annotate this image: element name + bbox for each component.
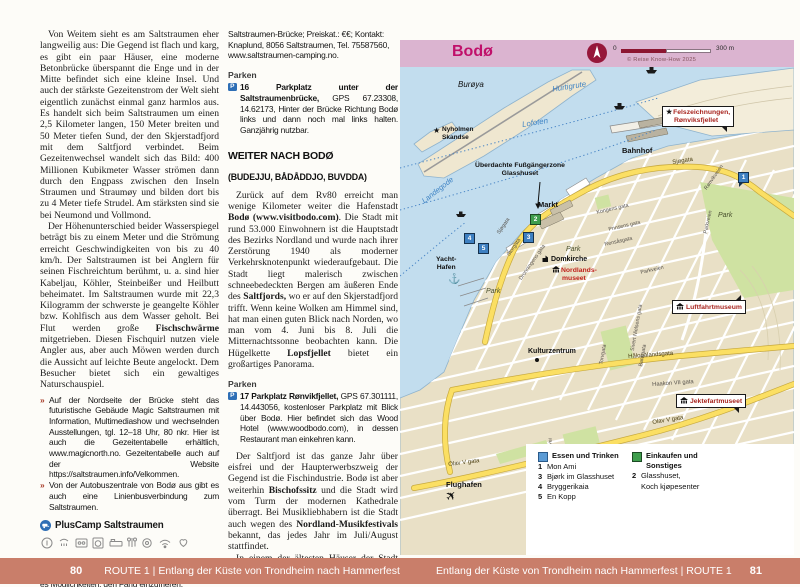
page-number-left: 80 — [70, 565, 82, 577]
tip-bullet-icon: » — [40, 480, 44, 491]
bahnhof-label: Bahnhof — [622, 146, 652, 155]
domkirche-label: Domkirche — [542, 254, 587, 263]
pets-icon — [180, 540, 187, 547]
poi-marker-2: 2 — [530, 214, 541, 225]
parking-entry-17: P 17 Parkplatz Rønvikfjellet, GPS 67.301… — [228, 391, 398, 445]
footer-right-label: Entlang der Küste von Trondheim nach Ham… — [436, 565, 732, 577]
park-label: Park — [566, 246, 580, 253]
bodo-text: Zurück auf dem Rv80 erreicht man wenige … — [228, 190, 398, 371]
parking-number: 17 — [240, 391, 249, 401]
dishwashing-icon — [143, 539, 151, 547]
compass-icon — [586, 42, 608, 64]
parking-entry-16: P 16 Parkplatz unter der Saltstraumenbrü… — [228, 82, 398, 136]
church-icon — [542, 254, 549, 262]
map-title: Bodø — [452, 43, 493, 61]
legend-item: 4Bryggerikaia — [538, 482, 619, 492]
section-heading: WEITER NACH BODØ — [228, 150, 398, 162]
reception-icon — [42, 538, 52, 548]
island-label: Burøya — [458, 80, 484, 89]
legend-item: 3Bjørk im Glasshuset — [538, 472, 619, 482]
star-icon: ★ — [666, 109, 672, 116]
guidebook-spread: Von Weitem sieht es am Saltstraumen eher… — [0, 0, 800, 587]
bodo-text-2: Der Saltfjord ist das ganze Jahr über ei… — [228, 451, 398, 575]
markt-label: Markt — [538, 200, 558, 209]
middle-text-column: Saltstraumen-Brücke; Preiskat.: €€; Kont… — [228, 29, 398, 575]
park-label: Park — [486, 288, 500, 295]
poi-marker-1: 1 — [738, 172, 749, 183]
kulturzentrum-label: Kulturzentrum — [528, 348, 576, 355]
parking-icon: P — [228, 392, 237, 401]
kitchen-icon — [76, 539, 87, 547]
star-icon: ★ — [433, 126, 440, 135]
parken-heading: Parken — [228, 70, 398, 80]
left-text-column: Von Weitem sieht es am Saltstraumen eher… — [40, 29, 219, 587]
legend-shop-column: Einkaufen undSonstiges 2 Glasshuset,Koch… — [632, 451, 699, 492]
page-footer: 80 ROUTE 1 | Entlang der Küste von Trond… — [0, 558, 800, 584]
poi-marker-4: 4 — [464, 233, 475, 244]
amenity-icons-row — [40, 535, 219, 556]
luftfahrtmuseum-callout: Luftfahrtmuseum — [672, 300, 746, 314]
footer-left-label: ROUTE 1 | Entlang der Küste von Trondhei… — [104, 565, 400, 577]
campsite-heading: PlusCamp Saltstraumen — [40, 520, 219, 531]
legend-heading: Einkaufen undSonstiges — [646, 451, 698, 471]
campsite-icon — [40, 520, 51, 531]
legend-eat-column: Essen und Trinken 1Mon Ami 3Bjørk im Gla… — [538, 451, 619, 502]
scale-start: 0 — [613, 45, 617, 52]
tip-item: » Von der Autobuszentrale von Bodø aus g… — [40, 480, 219, 512]
map-copyright: © Reise Know-How 2025 — [627, 57, 696, 63]
legend-item: 2 Glasshuset,Koch kjøpesenter — [632, 471, 699, 491]
campsite-name: PlusCamp Saltstraumen — [55, 520, 164, 531]
anchor-icon: ⚓ — [448, 274, 460, 285]
wc-icon — [128, 538, 137, 547]
legend-blue-square — [538, 452, 548, 462]
section-subheading: (BUDEJJU, BÅDÅDDJO, BUVDDA) — [228, 172, 398, 182]
paragraph: Von Weitem sieht es am Saltstraumen eher… — [40, 29, 219, 221]
park-label: Park — [718, 212, 732, 219]
nyholmen-label: NyholmenSkandse — [442, 126, 473, 141]
felszeichnungen-callout: ★Felszeichnungen, Rønviksfjellet — [662, 106, 734, 127]
poi-marker-3: 3 — [523, 232, 534, 243]
jektefartmuseet-callout: Jektefartmuseet — [676, 394, 746, 408]
legend-item: 1Mon Ami — [538, 462, 619, 472]
legend-heading: Essen und Trinken — [552, 451, 619, 462]
kulturzentrum-dot — [535, 358, 539, 362]
museum-icon — [680, 397, 688, 404]
bodo-city-map: Bodø 0 300 m © Reise Know-How 2025 Burøy… — [400, 40, 794, 555]
map-legend: Essen und Trinken 1Mon Ami 3Bjørk im Gla… — [526, 444, 794, 555]
fussgaengerzone-label: Überdachte FußgängerzoneGlasshuset — [458, 162, 582, 177]
paragraph: Der Höhenunterschied beider Wasserspiege… — [40, 221, 219, 390]
laundry-icon — [93, 538, 103, 548]
parking-icon: P — [228, 83, 237, 92]
footer-left: 80 ROUTE 1 | Entlang der Küste von Trond… — [70, 565, 400, 577]
legend-item: 5En Kopp — [538, 492, 619, 502]
legend-green-square — [632, 452, 642, 462]
parking-number: 16 — [240, 82, 249, 92]
scale-bar — [621, 49, 711, 53]
campsite-contact: Saltstraumen-Brücke; Preiskat.: €€; Kont… — [228, 29, 398, 61]
tip-bullet-icon: » — [40, 395, 44, 406]
page-number-right: 81 — [750, 565, 762, 577]
footer-right: Entlang der Küste von Trondheim nach Ham… — [436, 565, 762, 577]
bed-icon — [110, 540, 122, 547]
museum-icon — [552, 266, 560, 273]
poi-marker-5: 5 — [478, 243, 489, 254]
yachthafen-label: Yacht-Hafen — [436, 256, 456, 271]
shower-icon — [60, 539, 68, 546]
paragraph: Zurück auf dem Rv80 erreicht man wenige … — [228, 190, 398, 371]
wifi-icon — [160, 540, 170, 547]
scale-end: 300 m — [716, 45, 734, 52]
saltstraumen-text: Von Weitem sieht es am Saltstraumen eher… — [40, 29, 219, 391]
tip-item: » Auf der Nordseite der Brücke steht das… — [40, 395, 219, 481]
paragraph: Der Saltfjord ist das ganze Jahr über ei… — [228, 451, 398, 553]
nordlandsmuseet-label: Nordlands- museet — [552, 266, 597, 282]
museum-icon — [676, 303, 684, 310]
parken-heading: Parken — [228, 379, 398, 389]
